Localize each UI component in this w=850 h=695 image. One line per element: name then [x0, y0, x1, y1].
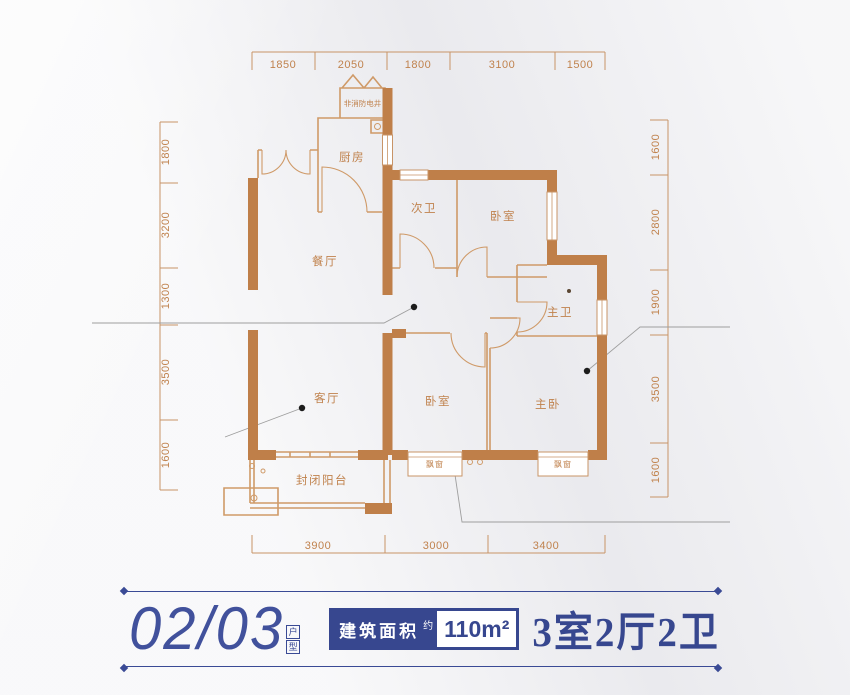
- info-banner: 02/03 户 型 建筑面积 约 110m² 3室2厅2卫: [125, 591, 717, 667]
- dimension-chain-top: 1850 2050 1800 3100 1500: [252, 52, 605, 71]
- dim-label: 1800: [160, 139, 172, 165]
- room-label-master-bath: 主卫: [547, 306, 573, 319]
- room-label-shaft: 非消防电井: [344, 98, 382, 108]
- dim-label: 1600: [160, 442, 172, 468]
- plumbing-fixture: [478, 460, 483, 465]
- dimension-chain-right: 1600 2800 1900 3500 1600: [650, 120, 668, 497]
- room-label-bath2: 次卫: [411, 201, 437, 215]
- room-label-bedroom-top: 卧室: [490, 209, 516, 223]
- thin-walls: [224, 75, 597, 515]
- room-label-master-bedroom: 主卧: [535, 398, 561, 411]
- dim-label: 3200: [160, 212, 172, 238]
- room-label-living: 客厅: [314, 391, 340, 405]
- unit-number: 02/03: [129, 593, 284, 666]
- dim-label: 2800: [650, 209, 662, 235]
- divider-diamond: [714, 663, 722, 671]
- room-label-dining: 餐厅: [312, 254, 338, 268]
- dim-label: 1800: [405, 59, 431, 71]
- plumbing-fixture: [468, 460, 473, 465]
- dim-label: 3100: [489, 59, 515, 71]
- balcony-fixture: [261, 469, 265, 473]
- seal-char-top: 户: [286, 625, 300, 639]
- area-box: 建筑面积 约 110m²: [329, 608, 519, 650]
- room-label-kitchen: 厨房: [339, 151, 365, 164]
- dim-label: 3000: [423, 540, 449, 552]
- dim-label: 1600: [650, 457, 662, 483]
- annotation-dot-small: [567, 289, 571, 293]
- area-label: 建筑面积: [339, 617, 419, 642]
- dimension-chain-bottom: 3900 3000 3400: [252, 535, 605, 553]
- dim-label: 2050: [338, 59, 364, 71]
- floor-plan-page: 1850 2050 1800 3100 1500 1800 3200 1300 …: [0, 0, 850, 695]
- annotation-dot: [299, 405, 305, 411]
- divider-diamond: [714, 586, 722, 594]
- room-label-bedroom-bottom: 卧室: [425, 394, 451, 408]
- room-label-bay-window-left: 飘窗: [426, 459, 444, 469]
- dim-label: 3500: [650, 376, 662, 402]
- annotation-dot: [411, 304, 417, 310]
- unit-type-seal: 户 型: [286, 625, 300, 654]
- area-approx: 约: [423, 617, 433, 632]
- dim-label: 3500: [160, 359, 172, 385]
- room-label-balcony: 封闭阳台: [296, 473, 348, 487]
- structural-walls: [248, 88, 607, 514]
- annotation-leaders: [92, 289, 730, 522]
- divider-diamond: [120, 663, 128, 671]
- floor-plan-drawing: 1850 2050 1800 3100 1500 1800 3200 1300 …: [0, 0, 850, 580]
- dim-label: 1500: [567, 59, 593, 71]
- dim-label: 3400: [533, 540, 559, 552]
- seal-char-bottom: 型: [286, 640, 300, 654]
- dim-label: 1900: [650, 289, 662, 315]
- room-label-bay-window-right: 飘窗: [554, 459, 572, 469]
- annotation-dot: [584, 368, 590, 374]
- dimension-chain-left: 1800 3200 1300 3500 1600: [160, 122, 178, 490]
- room-count-text: 3室2厅2卫: [532, 600, 720, 659]
- window-mullions: [388, 135, 603, 457]
- dim-label: 1850: [270, 59, 296, 71]
- interior-wall-lines: [224, 75, 597, 515]
- dim-label: 3900: [305, 540, 331, 552]
- leader-lines: [92, 307, 730, 522]
- room-labels: 厨房 非消防电井 次卫 卧室 餐厅 主卫 客厅 卧室 主卧 封闭阳台 飘窗 飘窗: [296, 98, 573, 487]
- dim-label: 1300: [160, 283, 172, 309]
- meter-fixture: [375, 124, 381, 130]
- divider-diamond: [120, 586, 128, 594]
- area-value: 110m²: [437, 611, 516, 647]
- dim-label: 1600: [650, 134, 662, 160]
